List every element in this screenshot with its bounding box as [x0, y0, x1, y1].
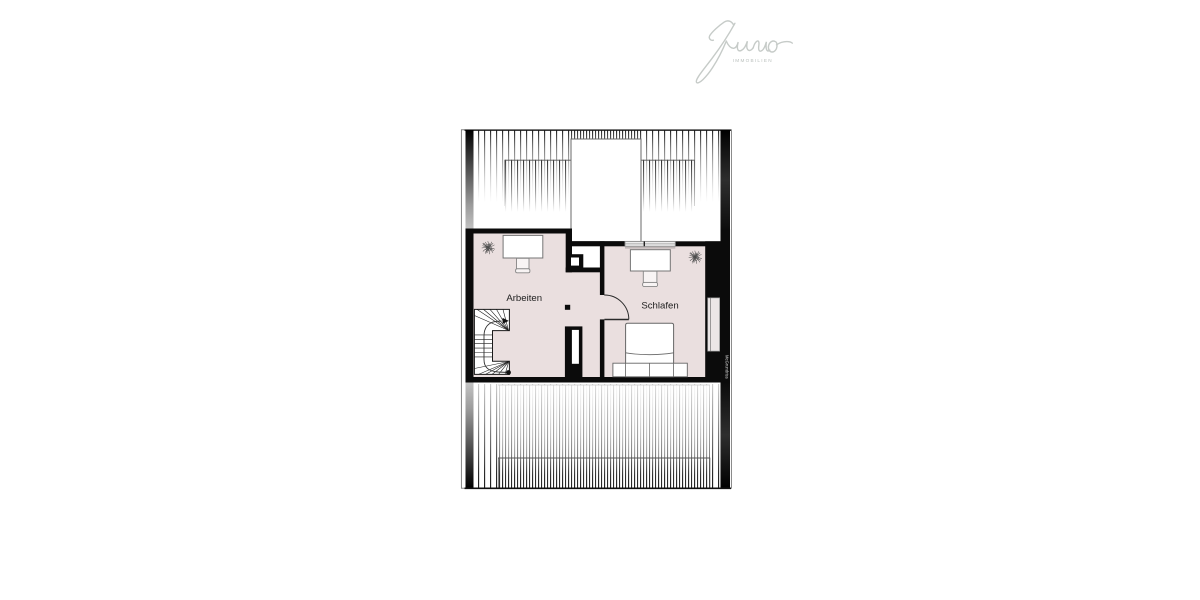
- svg-text:IMMOBILIEN: IMMOBILIEN: [733, 58, 773, 63]
- svg-text:McGrundriss: McGrundriss: [725, 355, 730, 379]
- svg-text:Schlafen: Schlafen: [641, 300, 678, 311]
- svg-text:Arbeiten: Arbeiten: [506, 293, 542, 304]
